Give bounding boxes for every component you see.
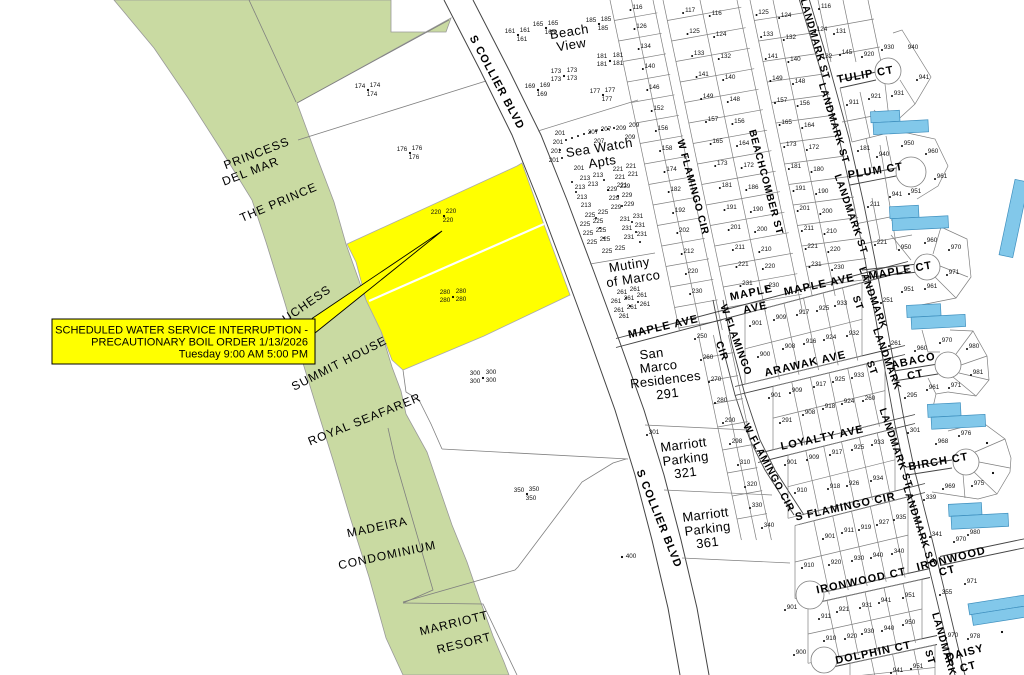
svg-text:231: 231 [742, 280, 753, 287]
svg-text:180: 180 [813, 166, 824, 173]
svg-text:940: 940 [908, 44, 919, 51]
svg-text:213: 213 [588, 181, 599, 188]
svg-text:125: 125 [689, 28, 700, 35]
svg-text:210: 210 [761, 246, 772, 253]
svg-text:141: 141 [768, 53, 779, 60]
svg-text:PRECAUTIONARY BOIL ORDER 1/13/: PRECAUTIONARY BOIL ORDER 1/13/2026 [91, 337, 308, 349]
svg-text:295: 295 [907, 392, 918, 399]
svg-text:981: 981 [973, 369, 984, 376]
svg-text:968: 968 [938, 438, 949, 445]
svg-text:176: 176 [397, 146, 408, 153]
svg-text:951: 951 [911, 188, 922, 195]
svg-text:900: 900 [760, 351, 771, 358]
svg-text:940: 940 [873, 552, 884, 559]
svg-text:908: 908 [785, 343, 796, 350]
svg-text:916: 916 [806, 338, 817, 345]
svg-text:201: 201 [574, 165, 585, 172]
svg-text:925: 925 [819, 305, 830, 312]
svg-text:310: 310 [740, 459, 751, 466]
svg-text:940: 940 [879, 151, 890, 158]
svg-text:169: 169 [540, 82, 551, 89]
svg-text:221: 221 [628, 171, 639, 178]
svg-text:270: 270 [711, 376, 722, 383]
svg-text:176: 176 [409, 154, 420, 161]
svg-text:917: 917 [816, 381, 827, 388]
svg-text:132: 132 [822, 53, 833, 60]
svg-text:157: 157 [708, 116, 719, 123]
svg-text:225: 225 [598, 209, 609, 216]
svg-text:145: 145 [842, 49, 853, 56]
svg-text:161: 161 [520, 27, 531, 34]
svg-text:225: 225 [596, 227, 607, 234]
svg-text:221: 221 [615, 174, 626, 181]
svg-text:231: 231 [635, 222, 646, 229]
svg-text:213: 213 [575, 184, 586, 191]
svg-text:173: 173 [551, 68, 562, 75]
svg-text:156: 156 [658, 125, 669, 132]
svg-text:301: 301 [910, 427, 921, 434]
svg-text:133: 133 [694, 50, 705, 57]
svg-text:300: 300 [486, 369, 497, 376]
svg-text:169: 169 [537, 91, 548, 98]
svg-text:209: 209 [629, 122, 640, 129]
svg-text:361: 361 [695, 534, 719, 552]
svg-text:181: 181 [860, 145, 871, 152]
svg-text:910: 910 [826, 635, 837, 642]
svg-text:124: 124 [817, 26, 828, 33]
svg-text:930: 930 [884, 44, 895, 51]
svg-text:260: 260 [703, 354, 714, 361]
svg-text:174: 174 [367, 91, 378, 98]
svg-text:220: 220 [688, 268, 699, 275]
svg-text:174: 174 [355, 83, 366, 90]
svg-text:225: 225 [583, 230, 594, 237]
svg-text:932: 932 [849, 330, 860, 337]
svg-text:174: 174 [370, 82, 381, 89]
svg-text:213: 213 [581, 202, 592, 209]
svg-text:210: 210 [826, 228, 837, 235]
svg-text:231: 231 [811, 261, 822, 268]
svg-text:921: 921 [839, 606, 850, 613]
svg-text:301: 301 [649, 429, 660, 436]
svg-text:920: 920 [847, 633, 858, 640]
svg-text:149: 149 [772, 75, 783, 82]
svg-text:960: 960 [927, 237, 938, 244]
svg-text:132: 132 [721, 53, 732, 60]
svg-text:225: 225 [593, 218, 604, 225]
svg-text:158: 158 [662, 145, 673, 152]
svg-text:950: 950 [905, 619, 916, 626]
svg-text:339: 339 [926, 494, 937, 501]
svg-text:181: 181 [597, 53, 608, 60]
svg-text:931: 931 [862, 602, 873, 609]
svg-text:941: 941 [893, 667, 904, 674]
svg-text:173: 173 [551, 76, 562, 83]
svg-text:173: 173 [717, 160, 728, 167]
svg-text:300: 300 [470, 370, 481, 377]
svg-text:918: 918 [830, 483, 841, 490]
svg-text:125: 125 [758, 9, 769, 16]
svg-text:192: 192 [675, 207, 686, 214]
svg-text:261: 261 [637, 292, 648, 299]
svg-text:140: 140 [725, 74, 736, 81]
svg-text:976: 976 [961, 430, 972, 437]
svg-text:230: 230 [769, 282, 780, 289]
svg-text:924: 924 [826, 334, 837, 341]
svg-text:934: 934 [873, 475, 884, 482]
svg-text:117: 117 [685, 7, 696, 14]
svg-text:971: 971 [951, 382, 962, 389]
svg-text:200: 200 [822, 208, 833, 215]
svg-text:124: 124 [716, 31, 727, 38]
svg-text:116: 116 [821, 3, 832, 10]
svg-text:201: 201 [549, 157, 560, 164]
svg-text:211: 211 [735, 244, 746, 251]
svg-text:910: 910 [797, 487, 808, 494]
svg-text:261: 261 [640, 301, 651, 308]
svg-text:919: 919 [861, 524, 872, 531]
svg-text:231: 231 [620, 216, 631, 223]
svg-text:191: 191 [726, 204, 737, 211]
svg-text:181: 181 [791, 163, 802, 170]
svg-text:149: 149 [703, 93, 714, 100]
svg-text:970: 970 [951, 244, 962, 251]
svg-text:164: 164 [804, 122, 815, 129]
svg-text:980: 980 [970, 529, 981, 536]
svg-text:157: 157 [777, 97, 788, 104]
svg-text:951: 951 [913, 663, 924, 670]
svg-text:969: 969 [945, 483, 956, 490]
svg-text:924: 924 [844, 398, 855, 405]
svg-text:221: 221 [807, 243, 818, 250]
svg-text:182: 182 [670, 186, 681, 193]
svg-text:186: 186 [748, 184, 759, 191]
svg-text:191: 191 [795, 185, 806, 192]
svg-text:181: 181 [613, 60, 624, 67]
svg-text:220: 220 [446, 208, 457, 215]
svg-text:961: 961 [929, 384, 940, 391]
svg-text:940: 940 [884, 625, 895, 632]
svg-text:960: 960 [928, 148, 939, 155]
svg-text:165: 165 [533, 21, 544, 28]
svg-text:970: 970 [948, 632, 959, 639]
svg-text:978: 978 [970, 633, 981, 640]
svg-text:340: 340 [894, 548, 905, 555]
svg-text:211: 211 [870, 201, 881, 208]
svg-text:950: 950 [904, 140, 915, 147]
svg-text:291: 291 [655, 385, 679, 403]
svg-text:133: 133 [763, 31, 774, 38]
svg-text:140: 140 [790, 56, 801, 63]
svg-text:221: 221 [613, 166, 624, 173]
svg-text:156: 156 [799, 100, 810, 107]
svg-text:209: 209 [616, 125, 627, 132]
svg-text:950: 950 [901, 244, 912, 251]
svg-text:260: 260 [865, 395, 876, 402]
svg-text:921: 921 [871, 93, 882, 100]
svg-text:213: 213 [593, 172, 604, 179]
svg-text:930: 930 [854, 555, 865, 562]
svg-text:172: 172 [743, 162, 754, 169]
svg-text:181: 181 [597, 61, 608, 68]
svg-text:220: 220 [443, 217, 454, 224]
svg-text:350: 350 [529, 486, 540, 493]
svg-text:211: 211 [804, 225, 815, 232]
svg-text:220: 220 [765, 263, 776, 270]
svg-text:951: 951 [904, 286, 915, 293]
svg-text:225: 225 [587, 239, 598, 246]
svg-text:970: 970 [942, 337, 953, 344]
svg-text:280: 280 [717, 397, 728, 404]
svg-text:971: 971 [949, 269, 960, 276]
svg-text:164: 164 [739, 140, 750, 147]
svg-text:185: 185 [598, 25, 609, 32]
svg-text:165: 165 [712, 138, 723, 145]
svg-text:941: 941 [881, 597, 892, 604]
svg-text:185: 185 [601, 16, 612, 23]
svg-text:165: 165 [548, 20, 559, 27]
svg-text:201: 201 [799, 205, 810, 212]
svg-text:176: 176 [412, 145, 423, 152]
svg-text:181: 181 [613, 52, 624, 59]
svg-text:229: 229 [611, 204, 622, 211]
svg-text:340: 340 [764, 522, 775, 529]
svg-text:169: 169 [525, 83, 536, 90]
svg-text:141: 141 [698, 71, 709, 78]
svg-text:901: 901 [752, 320, 763, 327]
svg-text:951: 951 [905, 592, 916, 599]
svg-text:280: 280 [440, 297, 451, 304]
svg-text:931: 931 [894, 90, 905, 97]
svg-text:261: 261 [611, 298, 622, 305]
svg-text:920: 920 [864, 51, 875, 58]
svg-text:911: 911 [844, 527, 855, 534]
svg-text:134: 134 [640, 43, 651, 50]
svg-text:116: 116 [712, 10, 723, 17]
svg-text:350: 350 [526, 495, 537, 502]
svg-text:900: 900 [796, 649, 807, 656]
svg-text:165: 165 [545, 29, 556, 36]
svg-text:901: 901 [787, 459, 798, 466]
svg-text:970: 970 [956, 536, 967, 543]
svg-text:941: 941 [919, 74, 930, 81]
svg-text:221: 221 [626, 163, 637, 170]
svg-text:209: 209 [625, 134, 636, 141]
svg-text:172: 172 [809, 144, 820, 151]
svg-text:321: 321 [673, 464, 697, 482]
svg-text:291: 291 [782, 417, 793, 424]
svg-text:300: 300 [470, 378, 481, 385]
svg-text:225: 225 [615, 245, 626, 252]
svg-text:933: 933 [874, 439, 885, 446]
svg-text:229: 229 [620, 183, 631, 190]
svg-text:250: 250 [697, 333, 708, 340]
svg-text:911: 911 [849, 99, 860, 106]
svg-text:177: 177 [605, 87, 616, 94]
svg-text:146: 146 [649, 84, 660, 91]
svg-text:341: 341 [932, 531, 943, 538]
svg-text:320: 320 [747, 481, 758, 488]
svg-text:213: 213 [577, 194, 588, 201]
svg-text:926: 926 [849, 480, 860, 487]
svg-text:225: 225 [580, 221, 591, 228]
svg-text:148: 148 [795, 78, 806, 85]
svg-text:Tuesday 9:00 AM 5:00 PM: Tuesday 9:00 AM 5:00 PM [179, 348, 308, 360]
svg-text:909: 909 [776, 314, 787, 321]
svg-text:161: 161 [505, 28, 516, 35]
svg-text:975: 975 [974, 480, 985, 487]
svg-text:132: 132 [786, 34, 797, 41]
svg-text:298: 298 [732, 438, 743, 445]
svg-text:231: 231 [624, 234, 635, 241]
svg-text:901: 901 [825, 533, 836, 540]
svg-text:220: 220 [431, 209, 442, 216]
svg-text:251: 251 [883, 297, 894, 304]
svg-text:161: 161 [517, 36, 528, 43]
svg-text:350: 350 [514, 487, 525, 494]
svg-text:911: 911 [821, 613, 832, 620]
svg-text:126: 126 [636, 23, 647, 30]
svg-text:280: 280 [456, 288, 467, 295]
svg-text:930: 930 [864, 628, 875, 635]
svg-text:400: 400 [626, 553, 637, 560]
svg-text:190: 190 [753, 206, 764, 213]
svg-text:290: 290 [725, 417, 736, 424]
svg-text:961: 961 [937, 173, 948, 180]
svg-text:174: 174 [666, 166, 677, 173]
svg-text:901: 901 [771, 392, 782, 399]
svg-text:185: 185 [586, 17, 597, 24]
svg-text:230: 230 [834, 264, 845, 271]
svg-text:SCHEDULED WATER SERVICE INTERR: SCHEDULED WATER SERVICE INTERRUPTION - [55, 324, 308, 336]
svg-text:181: 181 [722, 182, 733, 189]
svg-text:221: 221 [877, 239, 888, 246]
svg-text:225: 225 [602, 248, 613, 255]
svg-text:177: 177 [590, 88, 601, 95]
svg-text:927: 927 [879, 519, 890, 526]
svg-text:221: 221 [738, 261, 749, 268]
svg-text:280: 280 [440, 289, 451, 296]
svg-text:355: 355 [942, 589, 953, 596]
svg-text:173: 173 [567, 75, 578, 82]
svg-text:933: 933 [854, 372, 865, 379]
svg-text:230: 230 [692, 288, 703, 295]
svg-text:261: 261 [619, 313, 630, 320]
svg-text:156: 156 [734, 118, 745, 125]
svg-text:909: 909 [809, 454, 820, 461]
svg-text:261: 261 [891, 340, 902, 347]
svg-text:177: 177 [602, 96, 613, 103]
svg-text:280: 280 [456, 296, 467, 303]
svg-text:116: 116 [632, 4, 643, 11]
svg-text:207: 207 [594, 138, 605, 145]
svg-text:131: 131 [836, 28, 847, 35]
svg-text:925: 925 [835, 376, 846, 383]
svg-text:148: 148 [730, 96, 741, 103]
svg-text:200: 200 [757, 226, 768, 233]
svg-text:961: 961 [927, 283, 938, 290]
svg-text:231: 231 [633, 213, 644, 220]
svg-text:908: 908 [805, 409, 816, 416]
svg-text:917: 917 [832, 449, 843, 456]
svg-text:201: 201 [555, 130, 566, 137]
svg-text:935: 935 [896, 514, 907, 521]
svg-text:261: 261 [627, 304, 638, 311]
svg-text:980: 980 [969, 343, 980, 350]
svg-text:212: 212 [683, 248, 694, 255]
svg-text:201: 201 [553, 139, 564, 146]
svg-text:917: 917 [799, 309, 810, 316]
svg-text:190: 190 [818, 188, 829, 195]
svg-text:300: 300 [486, 377, 497, 384]
svg-text:231: 231 [622, 225, 633, 232]
svg-text:173: 173 [567, 67, 578, 74]
svg-text:920: 920 [831, 559, 842, 566]
svg-text:165: 165 [781, 119, 792, 126]
svg-text:152: 152 [653, 105, 664, 112]
svg-text:201: 201 [730, 224, 741, 231]
svg-text:202: 202 [679, 227, 690, 234]
svg-text:901: 901 [787, 604, 798, 611]
svg-text:330: 330 [752, 502, 763, 509]
svg-text:971: 971 [967, 578, 978, 585]
svg-text:941: 941 [892, 191, 903, 198]
svg-text:173: 173 [786, 141, 797, 148]
svg-text:933: 933 [837, 300, 848, 307]
svg-text:124: 124 [781, 12, 792, 19]
svg-text:925: 925 [854, 444, 865, 451]
svg-text:229: 229 [624, 201, 635, 208]
svg-text:220: 220 [830, 246, 841, 253]
svg-text:909: 909 [792, 387, 803, 394]
svg-text:910: 910 [804, 562, 815, 569]
svg-text:231: 231 [637, 231, 648, 238]
svg-text:960: 960 [917, 345, 928, 352]
svg-text:229: 229 [622, 192, 633, 199]
svg-text:918: 918 [825, 403, 836, 410]
svg-text:225: 225 [600, 236, 611, 243]
svg-text:140: 140 [645, 63, 656, 70]
